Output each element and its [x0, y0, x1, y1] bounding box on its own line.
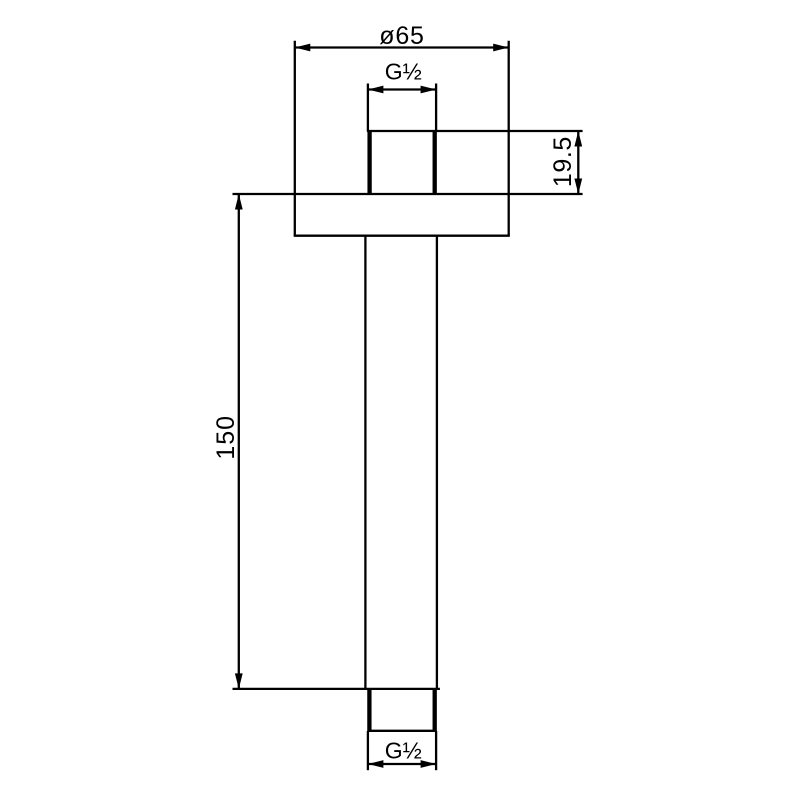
svg-text:G½: G½: [385, 738, 422, 764]
svg-text:ø65: ø65: [379, 22, 424, 50]
svg-text:19.5: 19.5: [549, 136, 577, 187]
svg-text:G½: G½: [385, 59, 422, 85]
svg-text:150: 150: [212, 415, 240, 460]
